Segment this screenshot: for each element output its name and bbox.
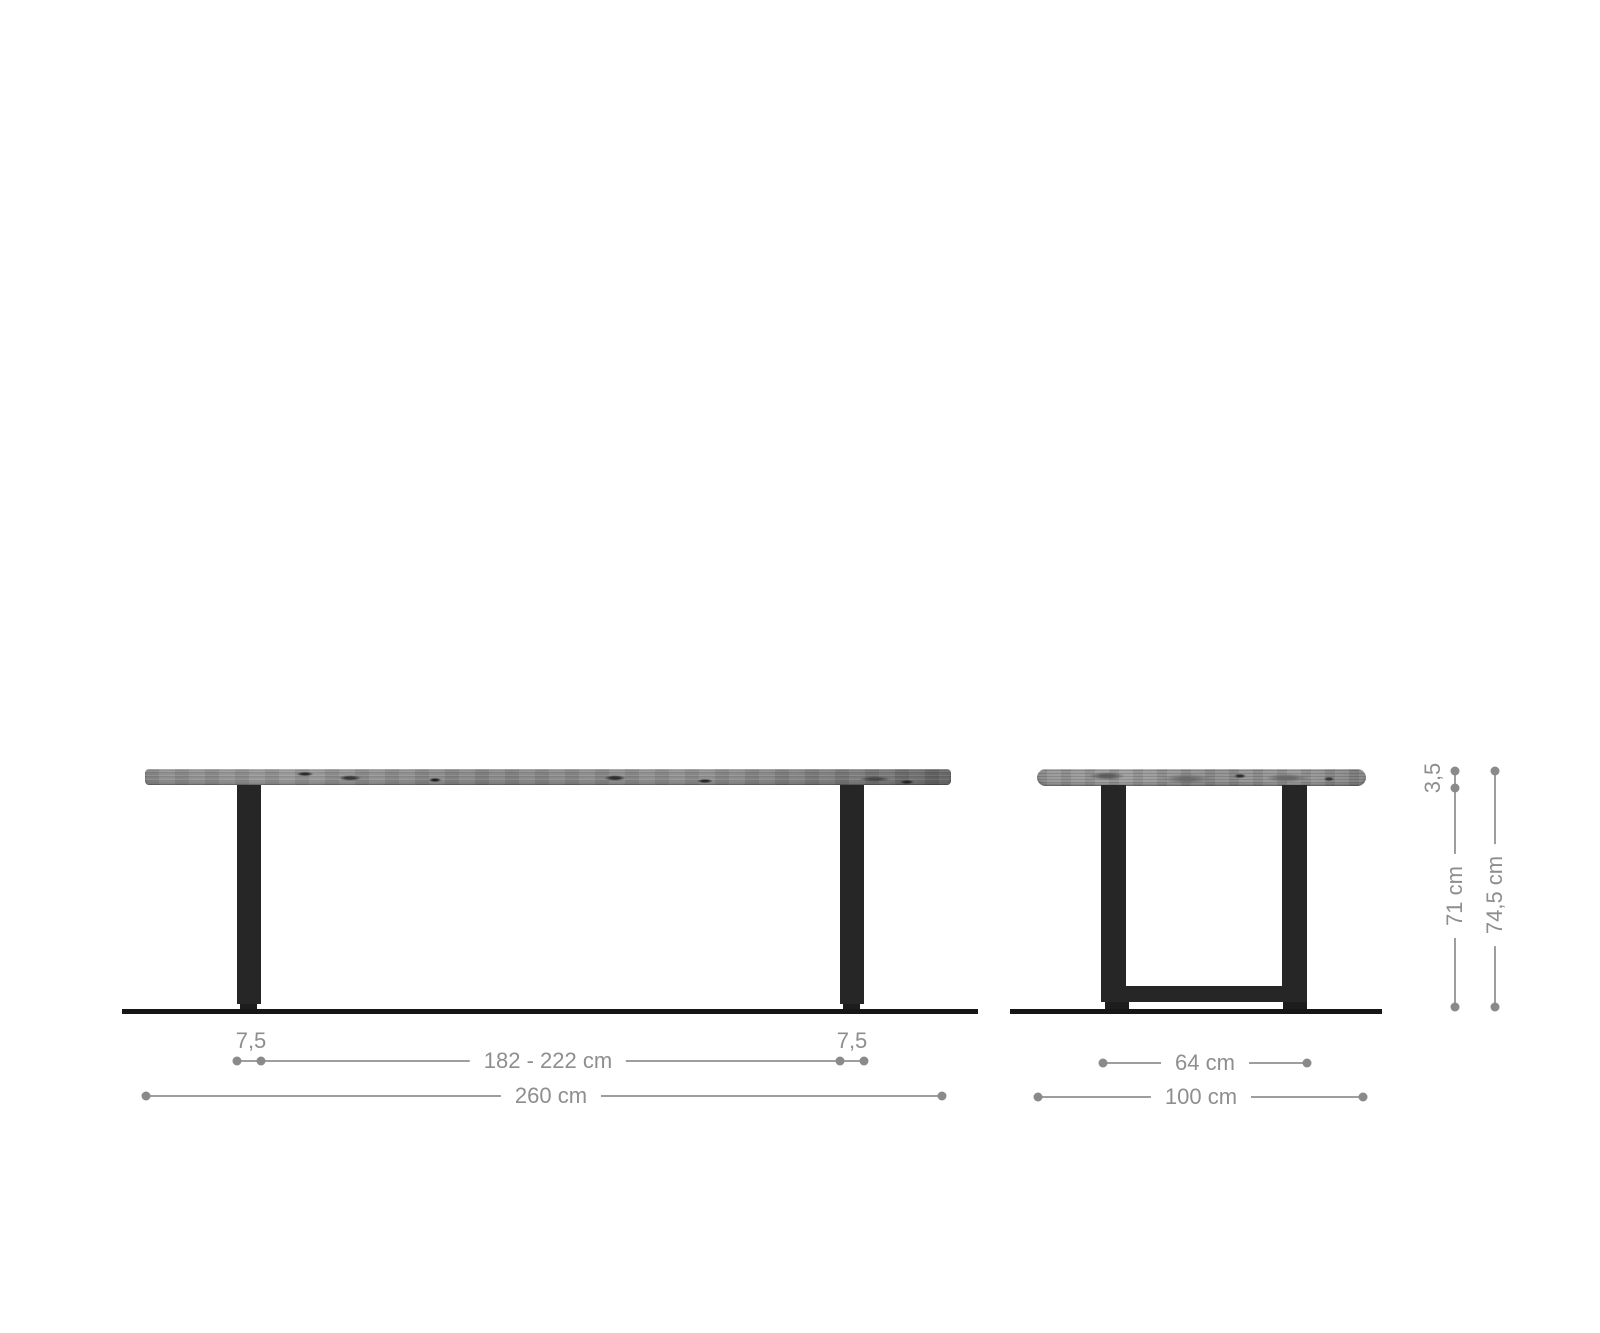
top-thickness-label: 3,5 [1422, 763, 1444, 794]
front-inner-span-label: 182 - 222 cm [470, 1046, 626, 1076]
front-right-leg [840, 785, 864, 1004]
front-leg-inset-left-label: 7,5 [236, 1030, 267, 1052]
front-total-width-label: 260 cm [501, 1081, 601, 1111]
total-height-label: 74,5 cm [1480, 844, 1510, 946]
dim-dot [1491, 767, 1500, 776]
frame-height-label: 71 cm [1440, 854, 1470, 938]
dim-dot [1451, 767, 1460, 776]
side-total-depth-label: 100 cm [1151, 1082, 1251, 1112]
dim-dot [1034, 1093, 1043, 1102]
front-floor-line [122, 1009, 978, 1014]
front-leg-inset-right-label: 7,5 [837, 1030, 868, 1052]
tabletop-side [1037, 769, 1366, 786]
side-left-foot [1105, 1002, 1129, 1009]
dim-dot [860, 1057, 869, 1066]
dim-dot [938, 1092, 947, 1101]
dim-dot [142, 1092, 151, 1101]
dimension-diagram: 7,5 7,5 182 - 222 cm 260 cm 64 cm 100 cm… [0, 0, 1600, 1333]
side-right-foot [1283, 1002, 1307, 1009]
side-frame-width-label: 64 cm [1161, 1048, 1249, 1078]
dim-dot [1099, 1059, 1108, 1068]
dim-dot [836, 1057, 845, 1066]
dim-dot [1451, 784, 1460, 793]
dim-dot [1451, 1003, 1460, 1012]
dim-dot [1303, 1059, 1312, 1068]
dim-dot [1359, 1093, 1368, 1102]
side-u-leg-frame [1101, 785, 1307, 1002]
front-left-leg [237, 785, 261, 1004]
dim-dot [1491, 1003, 1500, 1012]
dim-dot [257, 1057, 266, 1066]
dim-dot [233, 1057, 242, 1066]
tabletop-front [145, 769, 951, 785]
side-floor-line [1010, 1009, 1382, 1014]
